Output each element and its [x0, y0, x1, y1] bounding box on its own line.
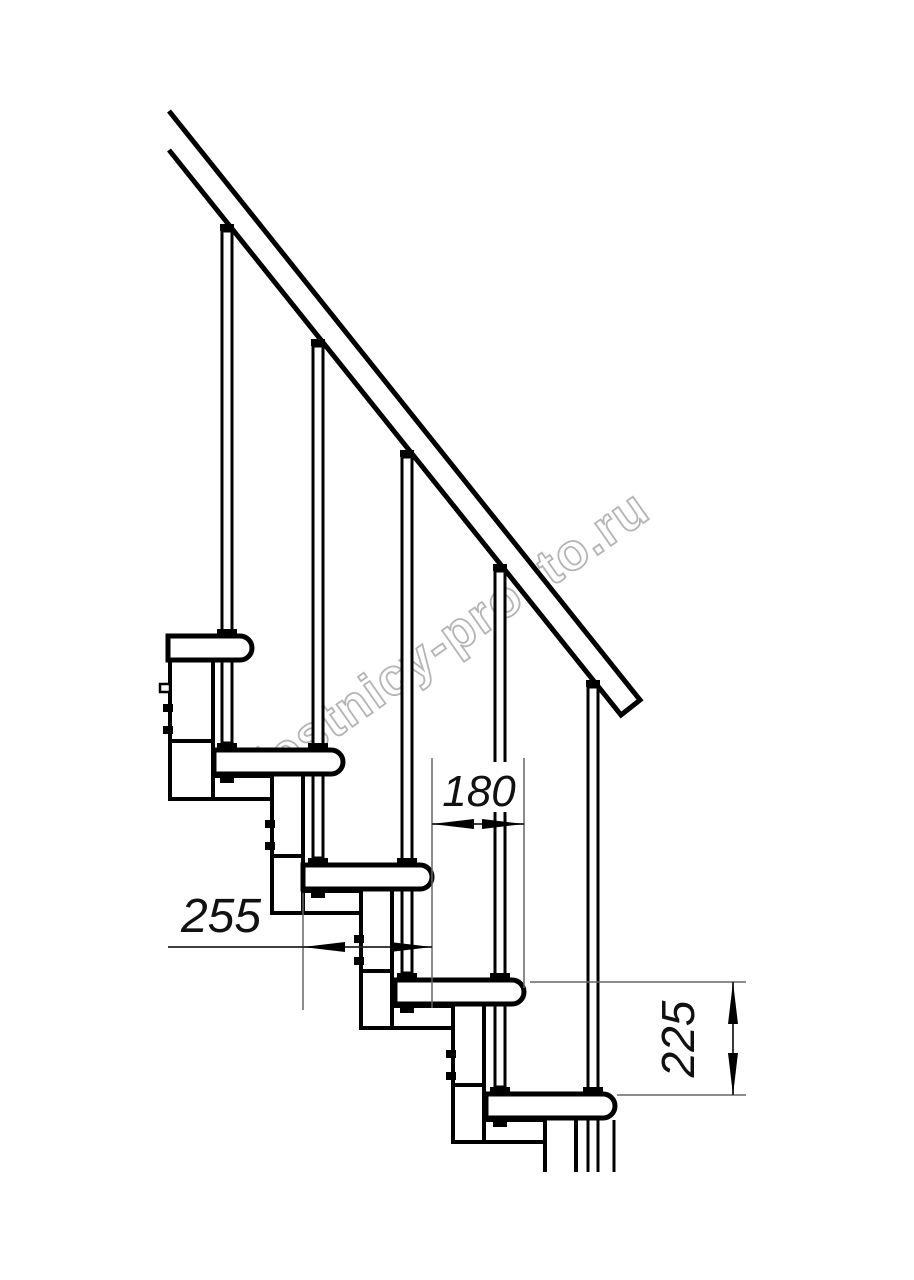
module-4-bolt-lower [446, 1072, 456, 1080]
dimension-label-180: 180 [442, 767, 516, 816]
baluster-4-foot [490, 1087, 510, 1094]
module-3-bolt-upper [354, 935, 364, 943]
baluster-4-collar [490, 973, 510, 980]
baluster-4-bolt [493, 1120, 507, 1127]
module-1 [160, 660, 272, 799]
baluster-2-rod-lower [313, 774, 323, 858]
staircase-drawing-page: lestnicy-prosto.ru [0, 0, 914, 1280]
arrowhead-bottom-225 [728, 1053, 738, 1095]
baluster-2-rod [313, 346, 323, 750]
baluster-2-collar [308, 743, 328, 750]
staircase-side-elevation: lestnicy-prosto.ru [0, 0, 914, 1280]
baluster-1-rod [222, 231, 232, 636]
module-2-bolt-upper [265, 820, 275, 828]
baluster-3 [400, 450, 414, 973]
baluster-1 [220, 224, 234, 743]
module-2-column [272, 774, 303, 913]
baluster-3-rod-lower [402, 889, 412, 973]
module-5-cut [545, 1118, 614, 1172]
tread-5 [486, 1094, 615, 1118]
baluster-5-rod [588, 687, 598, 1094]
dimension-label-255: 255 [180, 890, 261, 943]
arrowhead-left-255 [303, 942, 345, 952]
baluster-4-rod-lower [495, 1004, 505, 1087]
baluster-2 [311, 339, 325, 858]
dimension-step-run: 180 [432, 758, 524, 1008]
baluster-1-rod-lower [222, 660, 232, 743]
module-1-bolt-lower [163, 726, 173, 734]
baluster-5-collar [583, 1087, 603, 1094]
baluster-3-rod [402, 457, 412, 865]
module-4-bolt-upper [446, 1050, 456, 1058]
dimension-step-rise: 225 [530, 982, 746, 1095]
baluster-3-bolt [400, 1006, 414, 1013]
baluster-3-collar [397, 858, 417, 865]
module-1-tab [160, 684, 170, 692]
tread-1 [168, 636, 252, 660]
baluster-1-foot [217, 743, 237, 750]
module-4-column [453, 1004, 484, 1142]
baluster-2-foot [308, 858, 328, 865]
arrowhead-top-225 [728, 982, 738, 1024]
dimension-label-225: 225 [652, 1000, 704, 1078]
module-1-column [170, 660, 213, 799]
module-1-bolt-upper [163, 704, 173, 712]
tread-2 [214, 750, 343, 774]
tread-4 [395, 980, 524, 1004]
baluster-2-bolt [311, 891, 325, 898]
baluster-1-collar [217, 629, 237, 636]
tread-3 [303, 865, 432, 889]
baluster-3-foot [397, 973, 417, 980]
module-2-bolt-lower [265, 842, 275, 850]
module-3-column [361, 889, 392, 1028]
module-3-bolt-lower [354, 957, 364, 965]
arrowhead-left-180 [432, 819, 474, 829]
baluster-1-bolt [220, 776, 234, 783]
